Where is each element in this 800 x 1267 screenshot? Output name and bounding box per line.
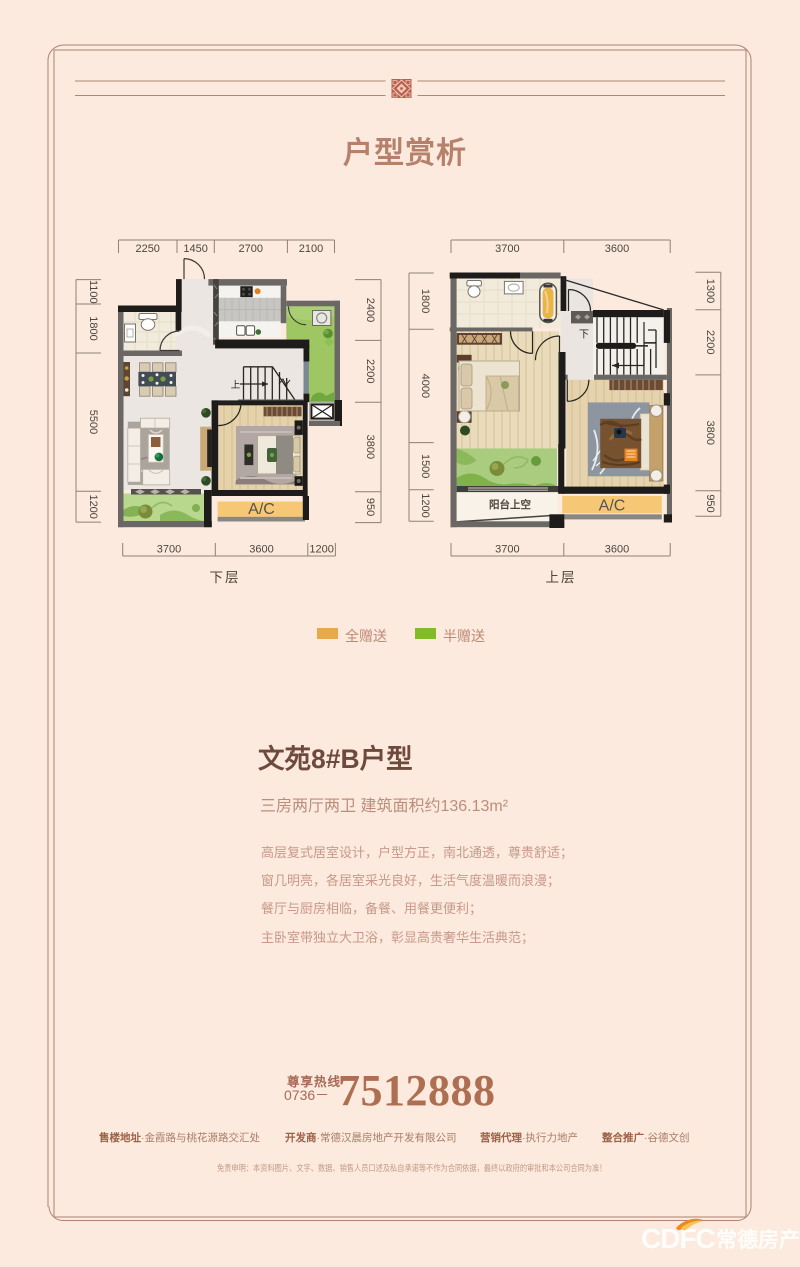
svg-text:1800: 1800 bbox=[87, 316, 99, 340]
svg-text:2700: 2700 bbox=[239, 243, 263, 255]
svg-text:3800: 3800 bbox=[704, 421, 716, 445]
svg-text:5500: 5500 bbox=[87, 410, 99, 434]
svg-text:1100: 1100 bbox=[87, 280, 99, 304]
svg-text:2200: 2200 bbox=[364, 359, 376, 383]
svg-text:阳台上空: 阳台上空 bbox=[489, 498, 531, 511]
svg-text:2200: 2200 bbox=[704, 330, 716, 354]
svg-text:2250: 2250 bbox=[135, 243, 159, 255]
svg-text:3600: 3600 bbox=[605, 243, 629, 255]
svg-text:3600: 3600 bbox=[605, 544, 629, 556]
svg-text:常德房产: 常德房产 bbox=[716, 1228, 800, 1252]
svg-text:3700: 3700 bbox=[495, 243, 519, 255]
svg-text:A/C: A/C bbox=[599, 498, 626, 515]
svg-text:1800: 1800 bbox=[419, 289, 431, 313]
svg-text:4000: 4000 bbox=[419, 374, 431, 398]
svg-text:上: 上 bbox=[231, 380, 241, 391]
svg-text:3700: 3700 bbox=[157, 544, 181, 556]
svg-text:3600: 3600 bbox=[249, 544, 273, 556]
svg-text:2400: 2400 bbox=[364, 298, 376, 322]
svg-text:下层: 下层 bbox=[210, 570, 241, 585]
svg-text:A/C: A/C bbox=[248, 501, 275, 518]
svg-text:2100: 2100 bbox=[299, 243, 323, 255]
svg-text:1300: 1300 bbox=[704, 279, 716, 303]
svg-text:1200: 1200 bbox=[309, 544, 333, 556]
svg-text:1200: 1200 bbox=[419, 493, 431, 517]
svg-text:1200: 1200 bbox=[87, 494, 99, 518]
svg-text:1500: 1500 bbox=[419, 454, 431, 478]
svg-text:1450: 1450 bbox=[183, 243, 207, 255]
svg-text:3700: 3700 bbox=[495, 544, 519, 556]
svg-text:950: 950 bbox=[704, 494, 716, 512]
svg-text:上层: 上层 bbox=[546, 570, 577, 585]
svg-text:950: 950 bbox=[364, 498, 376, 516]
svg-text:3800: 3800 bbox=[364, 435, 376, 459]
svg-text:下: 下 bbox=[579, 330, 589, 341]
